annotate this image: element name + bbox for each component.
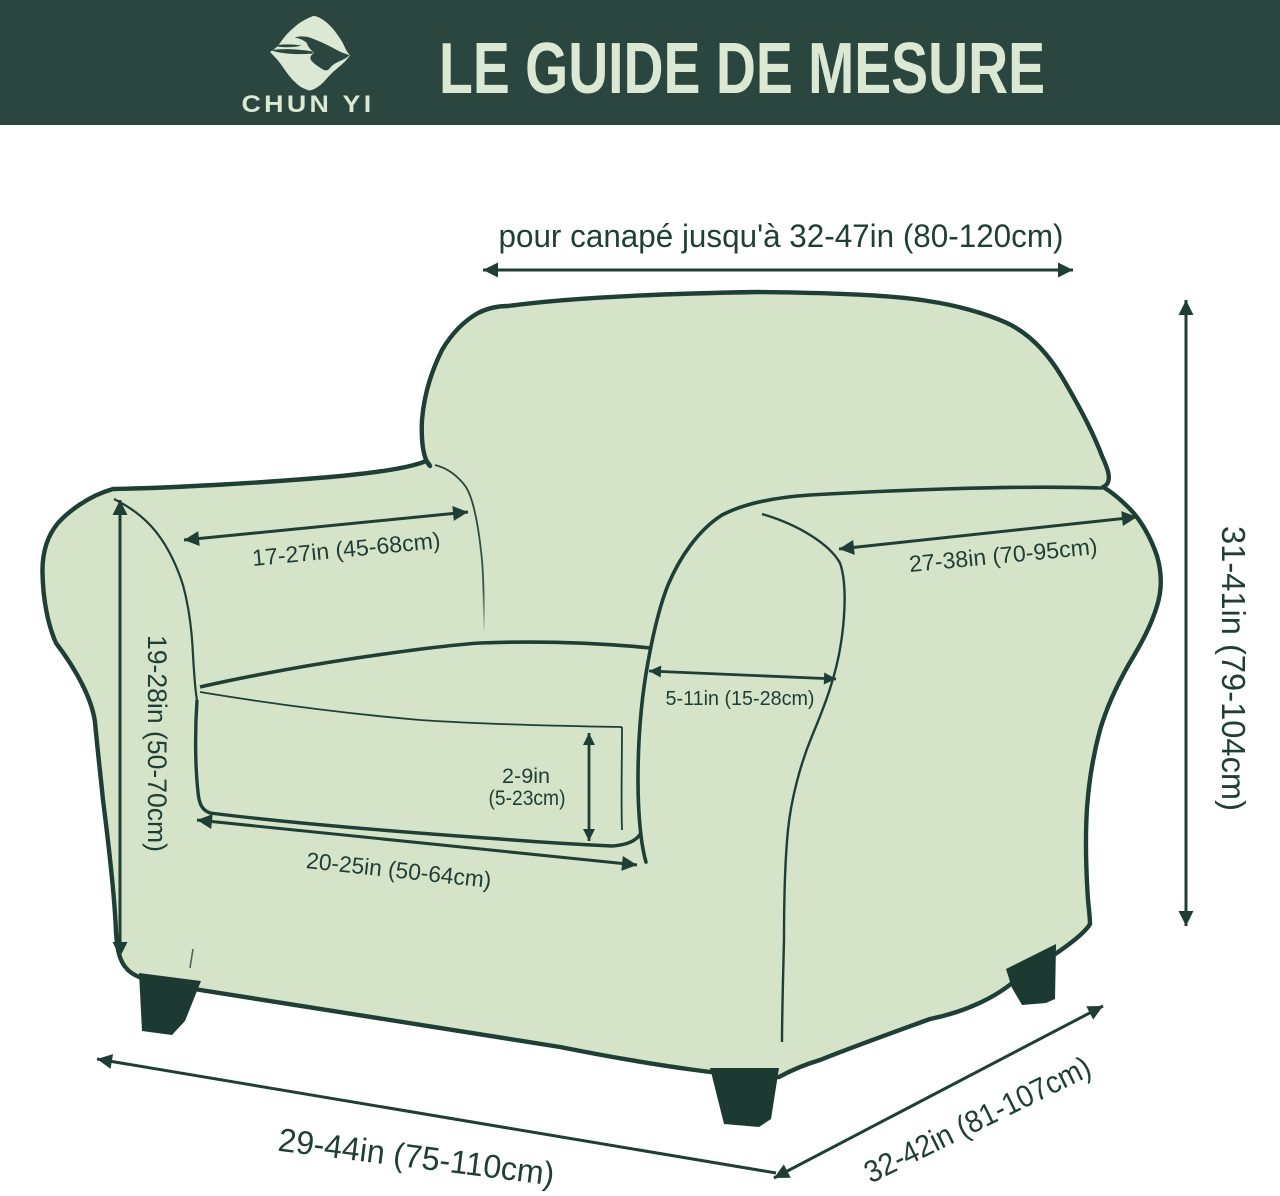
svg-text:(5-23cm): (5-23cm)	[489, 787, 566, 810]
svg-text:2-9in: 2-9in	[502, 765, 550, 788]
svg-text:31-41in (79-104cm): 31-41in (79-104cm)	[1215, 526, 1252, 811]
svg-text:CHUN YI: CHUN YI	[242, 91, 375, 118]
svg-text:5-11in (15-28cm): 5-11in (15-28cm)	[666, 688, 815, 710]
svg-text:29-44in (75-110cm): 29-44in (75-110cm)	[276, 1121, 556, 1193]
svg-text:pour canapé jusqu'à 32-47in (8: pour canapé jusqu'à 32-47in (80-120cm)	[499, 218, 1064, 254]
svg-text:LE GUIDE DE MESURE: LE GUIDE DE MESURE	[439, 29, 1045, 109]
svg-text:19-28in (50-70cm): 19-28in (50-70cm)	[142, 635, 172, 852]
